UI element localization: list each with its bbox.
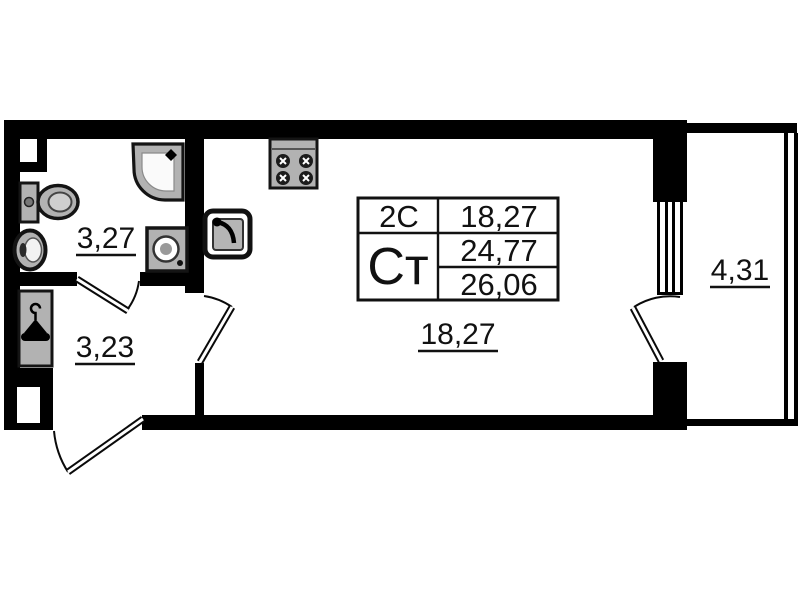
hallway-area-label: 3,23 xyxy=(76,331,134,364)
living-room-door xyxy=(200,296,232,362)
window-glazing xyxy=(657,202,683,295)
door-swing-arc xyxy=(634,296,680,307)
door-leaf-core xyxy=(77,279,128,311)
window-line-2 xyxy=(665,202,668,295)
washing-machine-icon xyxy=(147,228,187,271)
entrance-door xyxy=(54,419,143,472)
shower-icon xyxy=(133,144,183,200)
washer-drum-inner xyxy=(160,243,172,255)
wardrobe-icon xyxy=(19,291,52,366)
toilet-icon xyxy=(20,183,78,222)
door-swing-arc xyxy=(127,281,139,310)
balcony-glazing-outer xyxy=(784,133,788,426)
door-swing-arc xyxy=(54,431,68,472)
unit-info-table: 2С 18,27 Ст 24,77 26,06 xyxy=(358,198,558,302)
balcony-glazing-inner xyxy=(794,133,798,426)
bath-sink-icon xyxy=(15,231,46,270)
entry-wall-niche xyxy=(17,387,40,423)
balcony-wall-pillar-bottom xyxy=(653,362,687,430)
unit-area-total: 24,77 xyxy=(460,233,538,268)
stove-icon xyxy=(270,139,317,188)
unit-type-code: 2С xyxy=(379,199,419,234)
window-line-4 xyxy=(680,202,683,295)
toilet-bowl-inner xyxy=(49,193,72,212)
bathroom-area-label: 3,27 xyxy=(77,222,135,255)
door-leaf-core xyxy=(68,419,143,472)
sink-tap xyxy=(20,243,27,257)
bathroom-south-wall-right xyxy=(140,272,185,286)
door-swing-arc xyxy=(204,296,232,307)
balcony-door xyxy=(633,296,680,361)
unit-area-with-balcony: 26,06 xyxy=(460,267,538,302)
balcony-area-label: 4,31 xyxy=(711,254,769,287)
door-leaf-core xyxy=(200,307,232,362)
window-line-3 xyxy=(672,202,675,295)
bathroom-door xyxy=(77,279,139,311)
balcony-bottom-edge xyxy=(687,419,798,426)
balcony-wall-pillar-top xyxy=(653,139,687,202)
door-leaf-core xyxy=(633,308,661,361)
unit-living-area: 18,27 xyxy=(460,199,538,234)
shaft-bottom-border xyxy=(20,162,47,172)
window-line-1 xyxy=(657,202,660,295)
unit-code: Ст xyxy=(367,238,428,296)
top-wall xyxy=(4,120,687,139)
main-south-wall xyxy=(142,415,655,430)
hanger-bar xyxy=(21,333,50,341)
bathroom-south-wall-left xyxy=(20,272,77,286)
sink-basin-inner xyxy=(25,238,42,262)
kitchen-sink-icon xyxy=(205,211,250,257)
balcony-top-wall xyxy=(687,123,797,133)
living-area-label: 18,27 xyxy=(420,318,495,351)
floor-plan-drawing: 3,27 3,23 18,27 4,31 2С 18,27 Ст 24,77 2… xyxy=(0,0,799,600)
toilet-flush-button xyxy=(25,198,34,207)
window-bottom-cap xyxy=(657,292,683,295)
washer-knob xyxy=(177,260,183,266)
hall-east-wall-lower xyxy=(195,363,204,417)
floor-plan: 3,27 3,23 18,27 4,31 2С 18,27 Ст 24,77 2… xyxy=(0,0,799,600)
